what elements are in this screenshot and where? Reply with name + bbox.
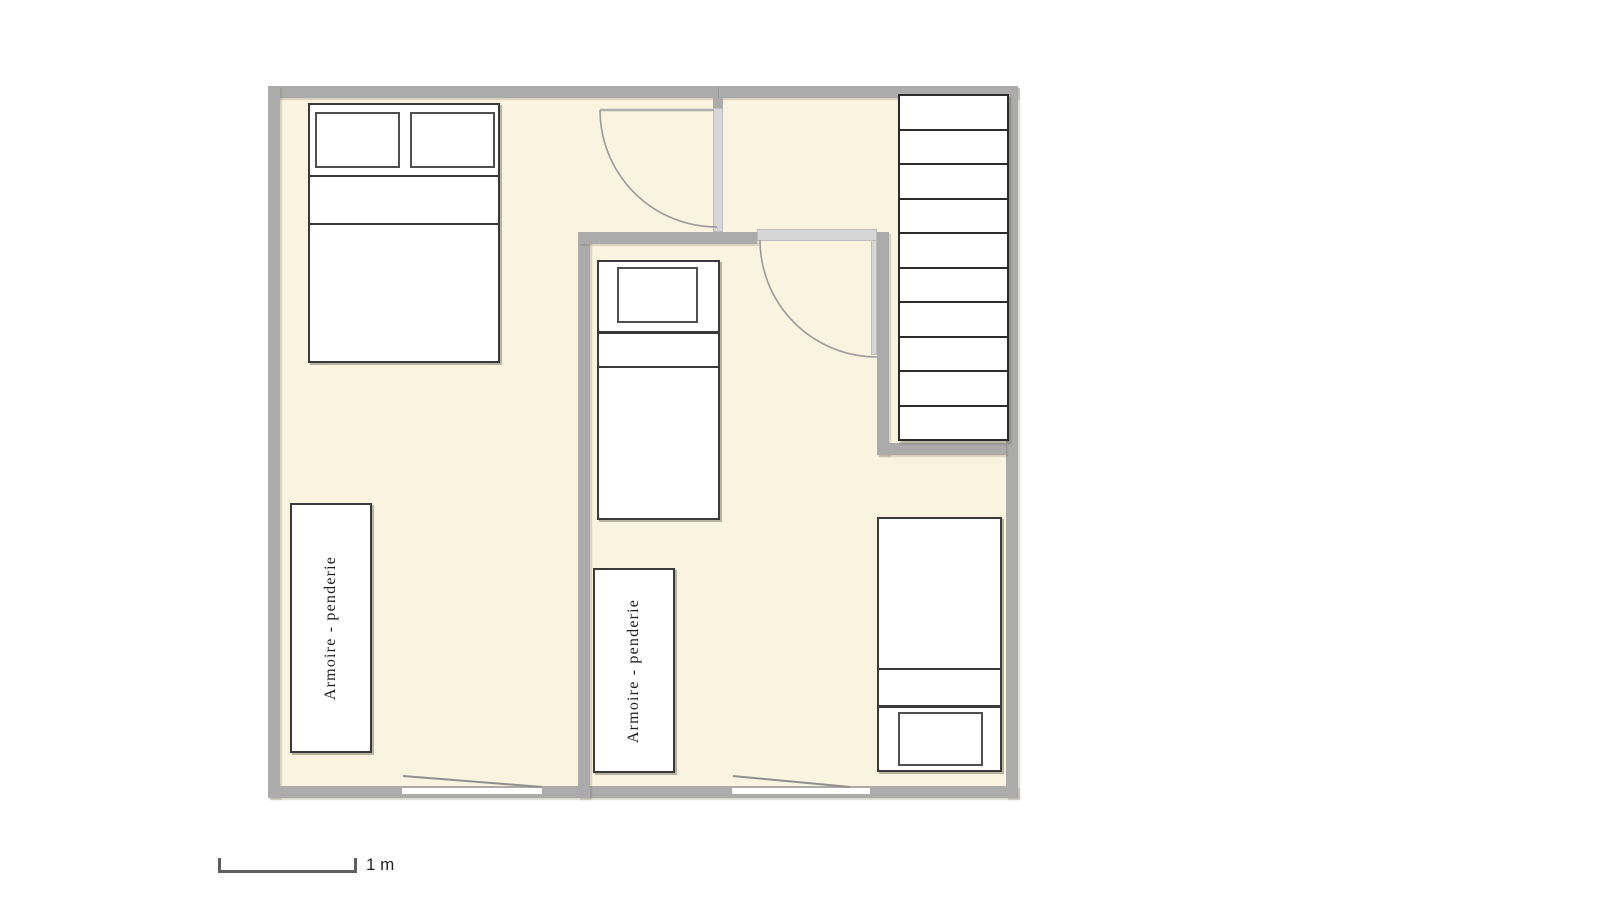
stair-tread <box>900 131 1007 166</box>
door2-leaf[interactable] <box>757 229 877 241</box>
stair-tread <box>900 407 1007 440</box>
wall-bottom <box>268 786 1018 798</box>
wall-stair-enclosure-bottom <box>877 443 1006 455</box>
pillow-right <box>410 112 495 168</box>
wardrobe-label: Armoire - penderie <box>625 598 643 742</box>
wall-partition-bedroom1-bedroom2 <box>578 232 590 798</box>
stair-tread <box>900 372 1007 407</box>
stair-tread <box>900 200 1007 235</box>
pillow <box>617 267 698 323</box>
scale-tick-right <box>354 858 357 873</box>
wall-bedroom2-top <box>578 232 757 244</box>
door2-open-leaf[interactable] <box>871 240 877 355</box>
bed-fold-line <box>599 366 718 368</box>
stair-tread <box>900 303 1007 338</box>
stair-tread <box>900 96 1007 131</box>
doorway-opening-bedroom1 <box>402 788 542 794</box>
single-bed-middle[interactable] <box>597 260 720 520</box>
door1-leaf[interactable] <box>713 108 723 232</box>
stair-tread <box>900 338 1007 373</box>
pillow <box>898 712 983 766</box>
bed-headboard-line <box>310 175 498 177</box>
bed-headboard-line <box>879 705 1000 708</box>
stair-tread <box>900 234 1007 269</box>
wall-stair-enclosure-left <box>877 232 889 455</box>
wardrobe-bedroom2[interactable]: Armoire - penderie <box>593 568 675 773</box>
pillow-left <box>315 112 400 168</box>
scale-label: 1 m <box>366 855 394 875</box>
scale-line <box>218 870 357 873</box>
wardrobe-bedroom1[interactable]: Armoire - penderie <box>290 503 372 753</box>
wall-seam <box>718 86 719 98</box>
single-bed-right[interactable] <box>877 517 1002 772</box>
stair-tread <box>900 165 1007 200</box>
stair-tread <box>900 269 1007 304</box>
staircase[interactable] <box>898 94 1009 441</box>
bed-fold-line <box>310 223 498 225</box>
doorway-opening-bedroom3 <box>732 788 870 794</box>
floorplan-canvas: Armoire - penderie Armoire - penderie 1 … <box>0 0 1600 900</box>
double-bed[interactable] <box>308 103 500 363</box>
wall-left <box>268 86 280 798</box>
bed-fold-line <box>879 668 1000 670</box>
wardrobe-label: Armoire - penderie <box>322 556 340 700</box>
bed-headboard-line <box>599 331 718 334</box>
